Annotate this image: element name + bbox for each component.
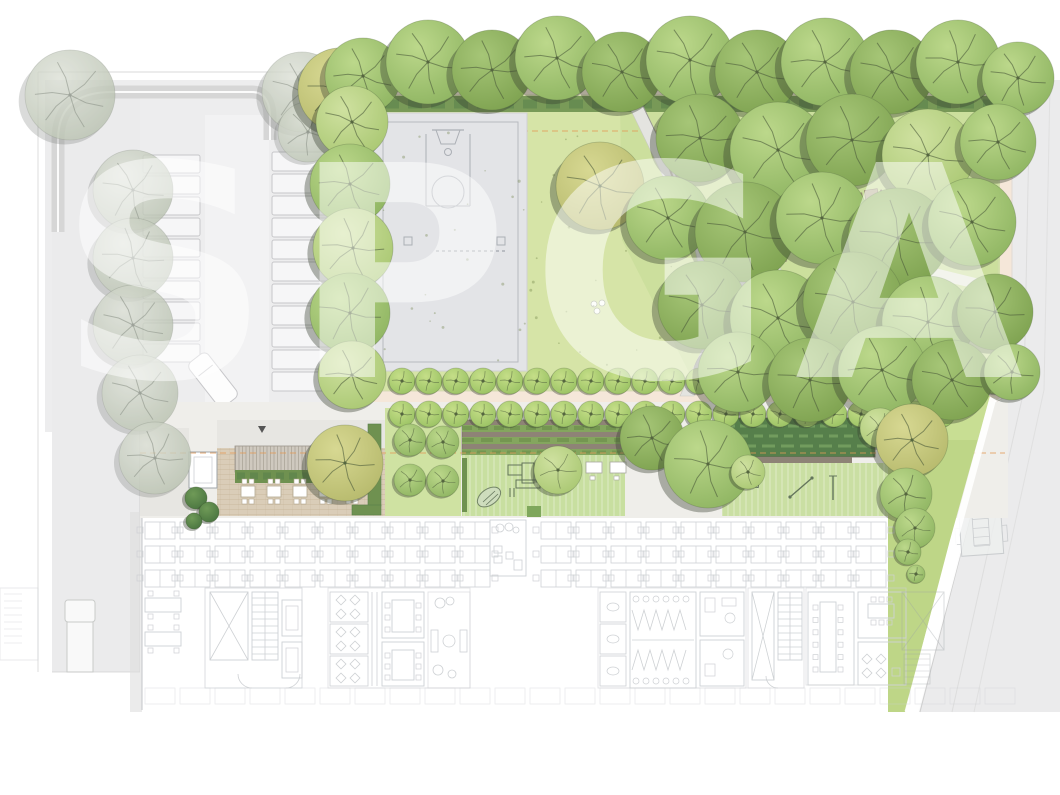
- truck: [65, 600, 95, 672]
- stair-stub-far-west: [0, 588, 38, 660]
- site-plan-drawing: [0, 0, 1060, 795]
- basketball-court: [374, 113, 527, 371]
- site-plan: SPGA: [0, 0, 1060, 795]
